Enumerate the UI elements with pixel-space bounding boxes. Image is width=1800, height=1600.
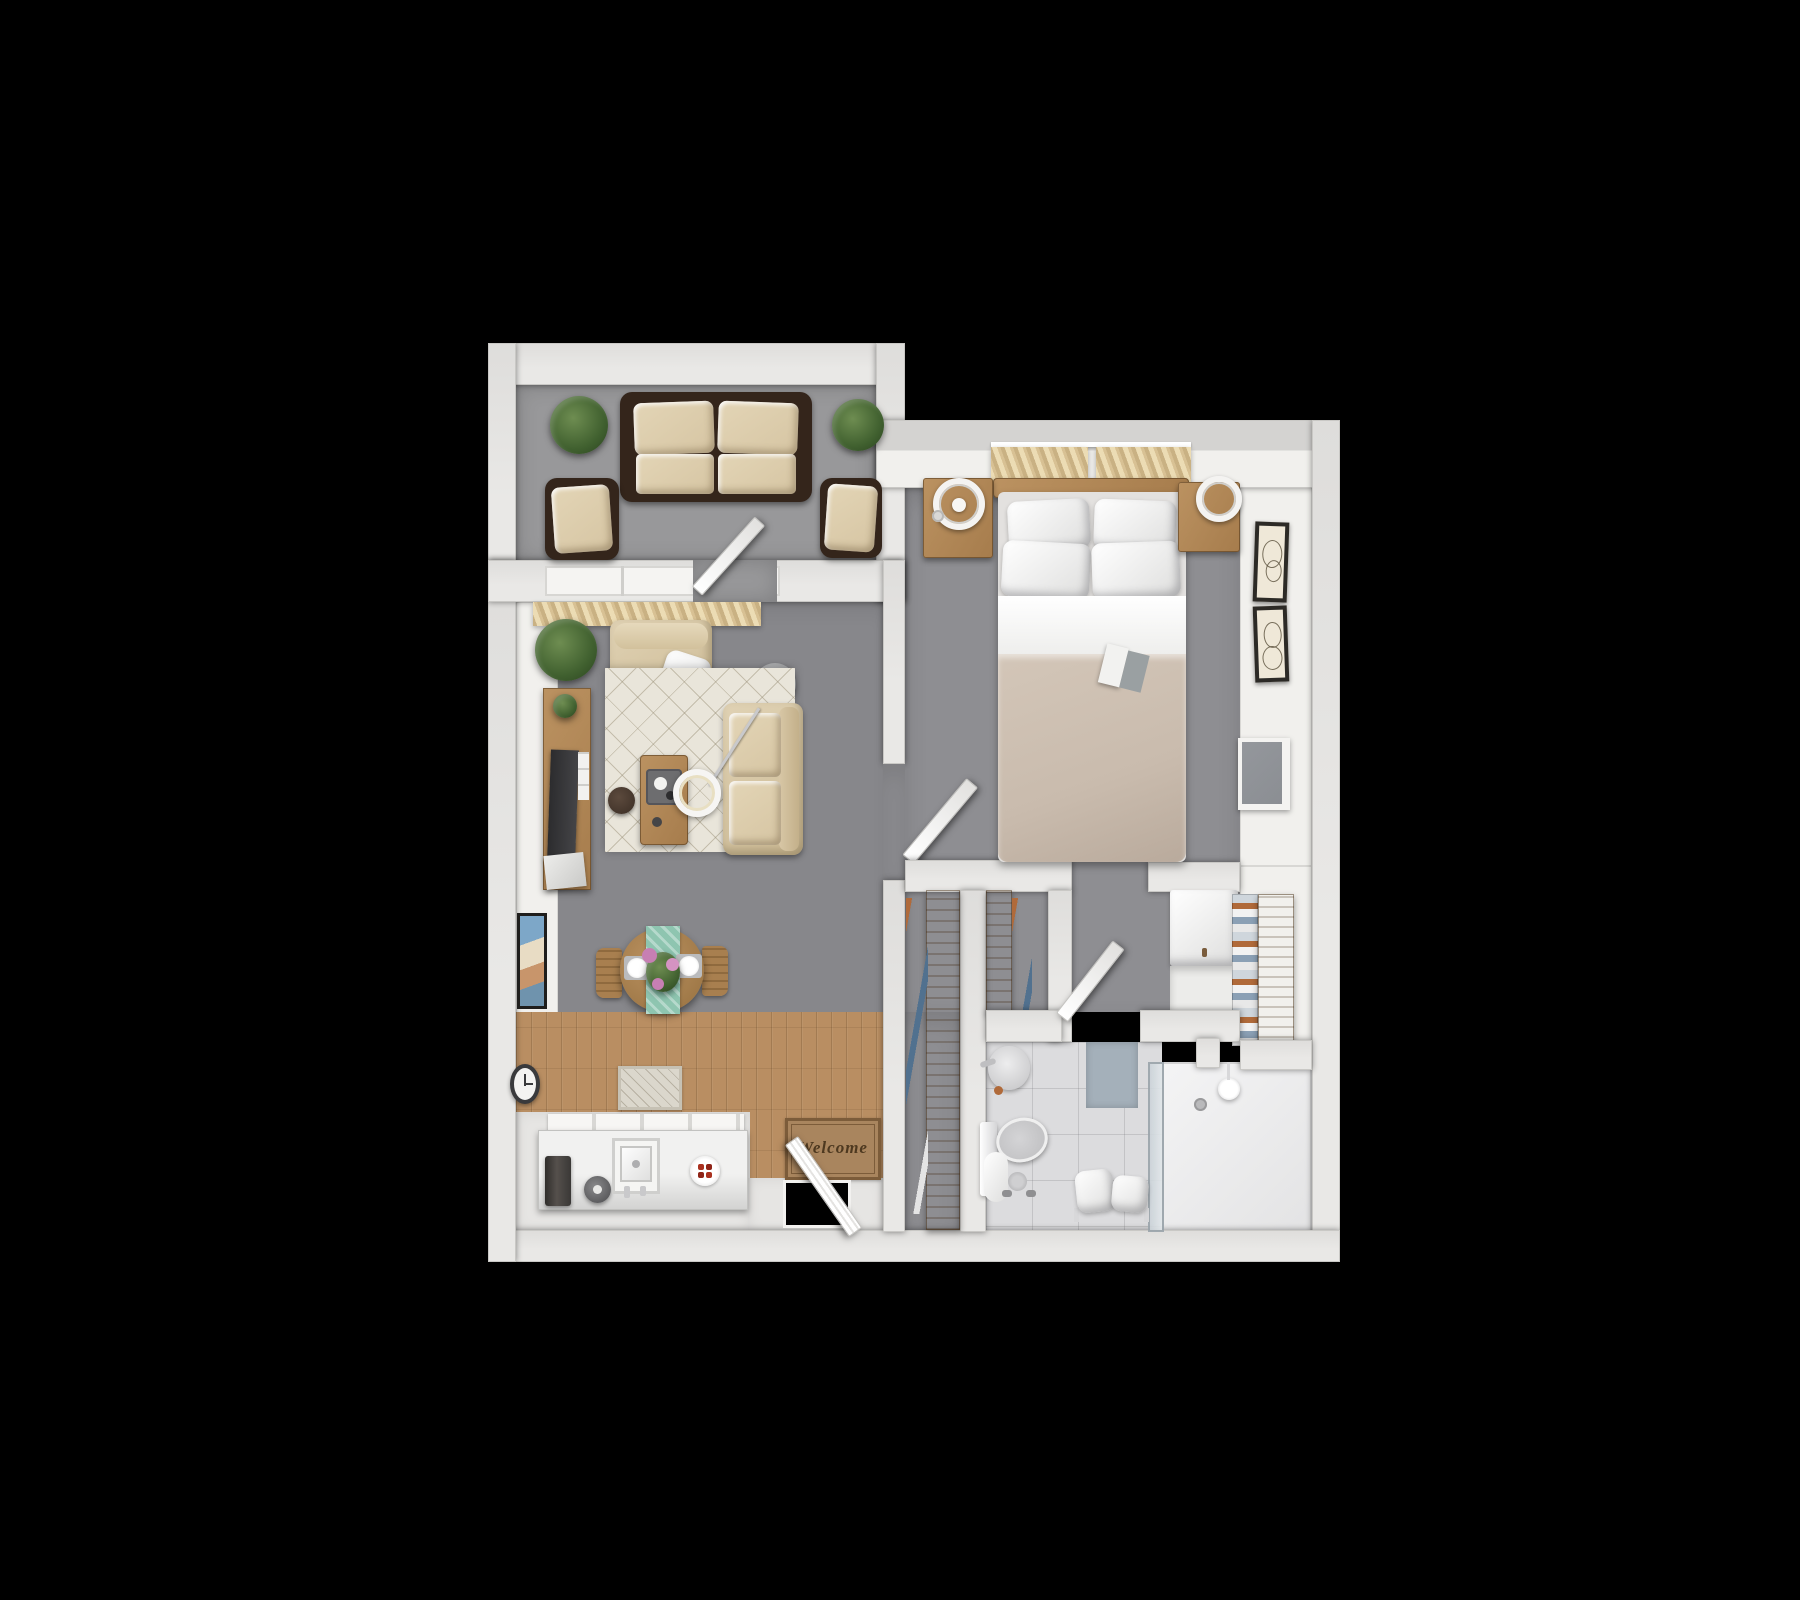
bath-mat: [1086, 1042, 1138, 1108]
sofa: [723, 703, 803, 855]
sink-handle: [640, 1186, 646, 1196]
sink-faucet: [624, 1186, 630, 1198]
dining-chair-right: [702, 946, 728, 996]
coffee-machine: [545, 1156, 571, 1206]
tv-stand: [543, 688, 591, 890]
burner-knob: [706, 1164, 712, 1170]
pillow: [1001, 540, 1092, 601]
potted-plant: [535, 619, 597, 681]
framed-art-top: [1253, 521, 1290, 602]
burner-knob: [698, 1172, 704, 1178]
mug: [654, 777, 667, 790]
patio-group: [516, 385, 876, 562]
wardrobe-rail-right: [986, 890, 1012, 1014]
small-rug: [618, 1066, 682, 1110]
stand-foot: [1002, 1190, 1012, 1197]
sink-basin: [988, 1046, 1030, 1090]
pedestal-sink: [986, 1044, 1030, 1092]
kettle: [584, 1176, 611, 1203]
toilet-paper-stand: [1002, 1172, 1036, 1198]
clock-hand: [525, 1083, 533, 1085]
sink-drain: [632, 1160, 640, 1168]
kitchen-sink: [612, 1138, 660, 1194]
wall-art: [517, 913, 547, 1009]
burner-knob: [706, 1172, 712, 1178]
bench-leg: [1144, 1208, 1149, 1222]
soap-dish: [994, 1086, 1003, 1095]
sofa-back-pillow: [633, 401, 715, 456]
wall-tv-frame: [1238, 738, 1290, 810]
dining-chair-left: [596, 948, 622, 998]
linen-closet-wall: [1148, 862, 1240, 892]
shower-glass: [1148, 1062, 1164, 1232]
bath-wall-right: [1140, 1010, 1240, 1042]
decor-item: [652, 817, 662, 827]
shower-cord: [1227, 1062, 1230, 1080]
stand-papers: [543, 852, 586, 890]
potted-plant-left: [550, 396, 608, 454]
bedroom-door-gap: [883, 764, 905, 880]
pouf: [608, 787, 635, 814]
wall-clock: [510, 1064, 540, 1104]
bench-leg: [1074, 1208, 1079, 1222]
hanging-clothes-left: [906, 898, 928, 1214]
lamp-bulb-left: [952, 498, 966, 512]
art-canvas: [520, 916, 544, 1006]
towel: [1110, 1174, 1149, 1213]
paper-roll: [1008, 1172, 1027, 1191]
wall-television: [1242, 742, 1282, 804]
wardrobe-rail-left: [926, 890, 960, 1230]
cooktop-burner: [690, 1156, 720, 1186]
sofa-back: [779, 707, 799, 851]
south-outer-wall: [488, 1230, 1340, 1262]
chair-cushion: [551, 484, 613, 554]
floor-drain: [1194, 1098, 1207, 1111]
cabinet-handle: [1202, 948, 1207, 957]
shower-top-wall: [1240, 1040, 1312, 1070]
wicker-armchair-left: [545, 478, 619, 560]
arc-lamp-shade: [673, 769, 721, 817]
television: [547, 750, 579, 865]
kitchen-counter: [538, 1114, 748, 1210]
sofa-seat-cushion: [636, 454, 714, 494]
west-wall-lower: [488, 560, 516, 1262]
cup: [932, 510, 944, 522]
east-outer-wall: [1312, 420, 1340, 1262]
flower: [642, 948, 657, 963]
stand-plant: [553, 694, 577, 718]
living-group: Welcome: [516, 602, 883, 1232]
place-setting-right: [676, 954, 702, 978]
plate: [679, 956, 699, 976]
floor-plan-canvas: Welcome: [0, 0, 1800, 1600]
towel: [1074, 1168, 1116, 1214]
wardrobe-panel: [1258, 894, 1294, 1048]
hall-wall-lower: [883, 880, 905, 1232]
dining-group: [590, 926, 754, 1030]
patio-north-wall: [488, 343, 900, 385]
towel-bench: [1074, 1168, 1150, 1222]
sink-bowl: [620, 1146, 652, 1182]
closet-wall-top: [905, 860, 1072, 892]
window-mullion: [621, 566, 624, 596]
chair-cushion: [824, 483, 878, 552]
flower: [666, 958, 679, 971]
framed-art-bottom: [1253, 605, 1290, 682]
wicker-sofa: [620, 392, 812, 502]
hall-wall-upper: [883, 560, 905, 764]
linen-cabinet: [1170, 890, 1238, 966]
pillow: [1091, 540, 1181, 599]
stand-foot: [1026, 1190, 1036, 1197]
burner-knob: [698, 1164, 704, 1170]
round-lamp-right: [1196, 476, 1242, 522]
flower: [652, 978, 664, 990]
bath-wall-left: [986, 1010, 1062, 1042]
linen-closet-floor: [1170, 966, 1238, 1014]
sofa-back-pillow: [717, 401, 799, 456]
hanging-clothes-right: [1012, 898, 1032, 1010]
wicker-armchair-right: [820, 478, 882, 558]
shower-stub-wall: [1196, 1038, 1220, 1068]
duvet: [998, 654, 1186, 862]
sofa-seat-cushion: [718, 454, 796, 494]
double-bed: [998, 478, 1186, 862]
potted-plant-right: [832, 399, 884, 451]
bed-sheet: [998, 596, 1186, 662]
shower-head: [1218, 1078, 1240, 1100]
sofa-cushion: [729, 781, 781, 845]
kettle-lid: [593, 1185, 602, 1194]
armchair-back: [614, 623, 708, 649]
stand-drawers: [578, 752, 589, 800]
